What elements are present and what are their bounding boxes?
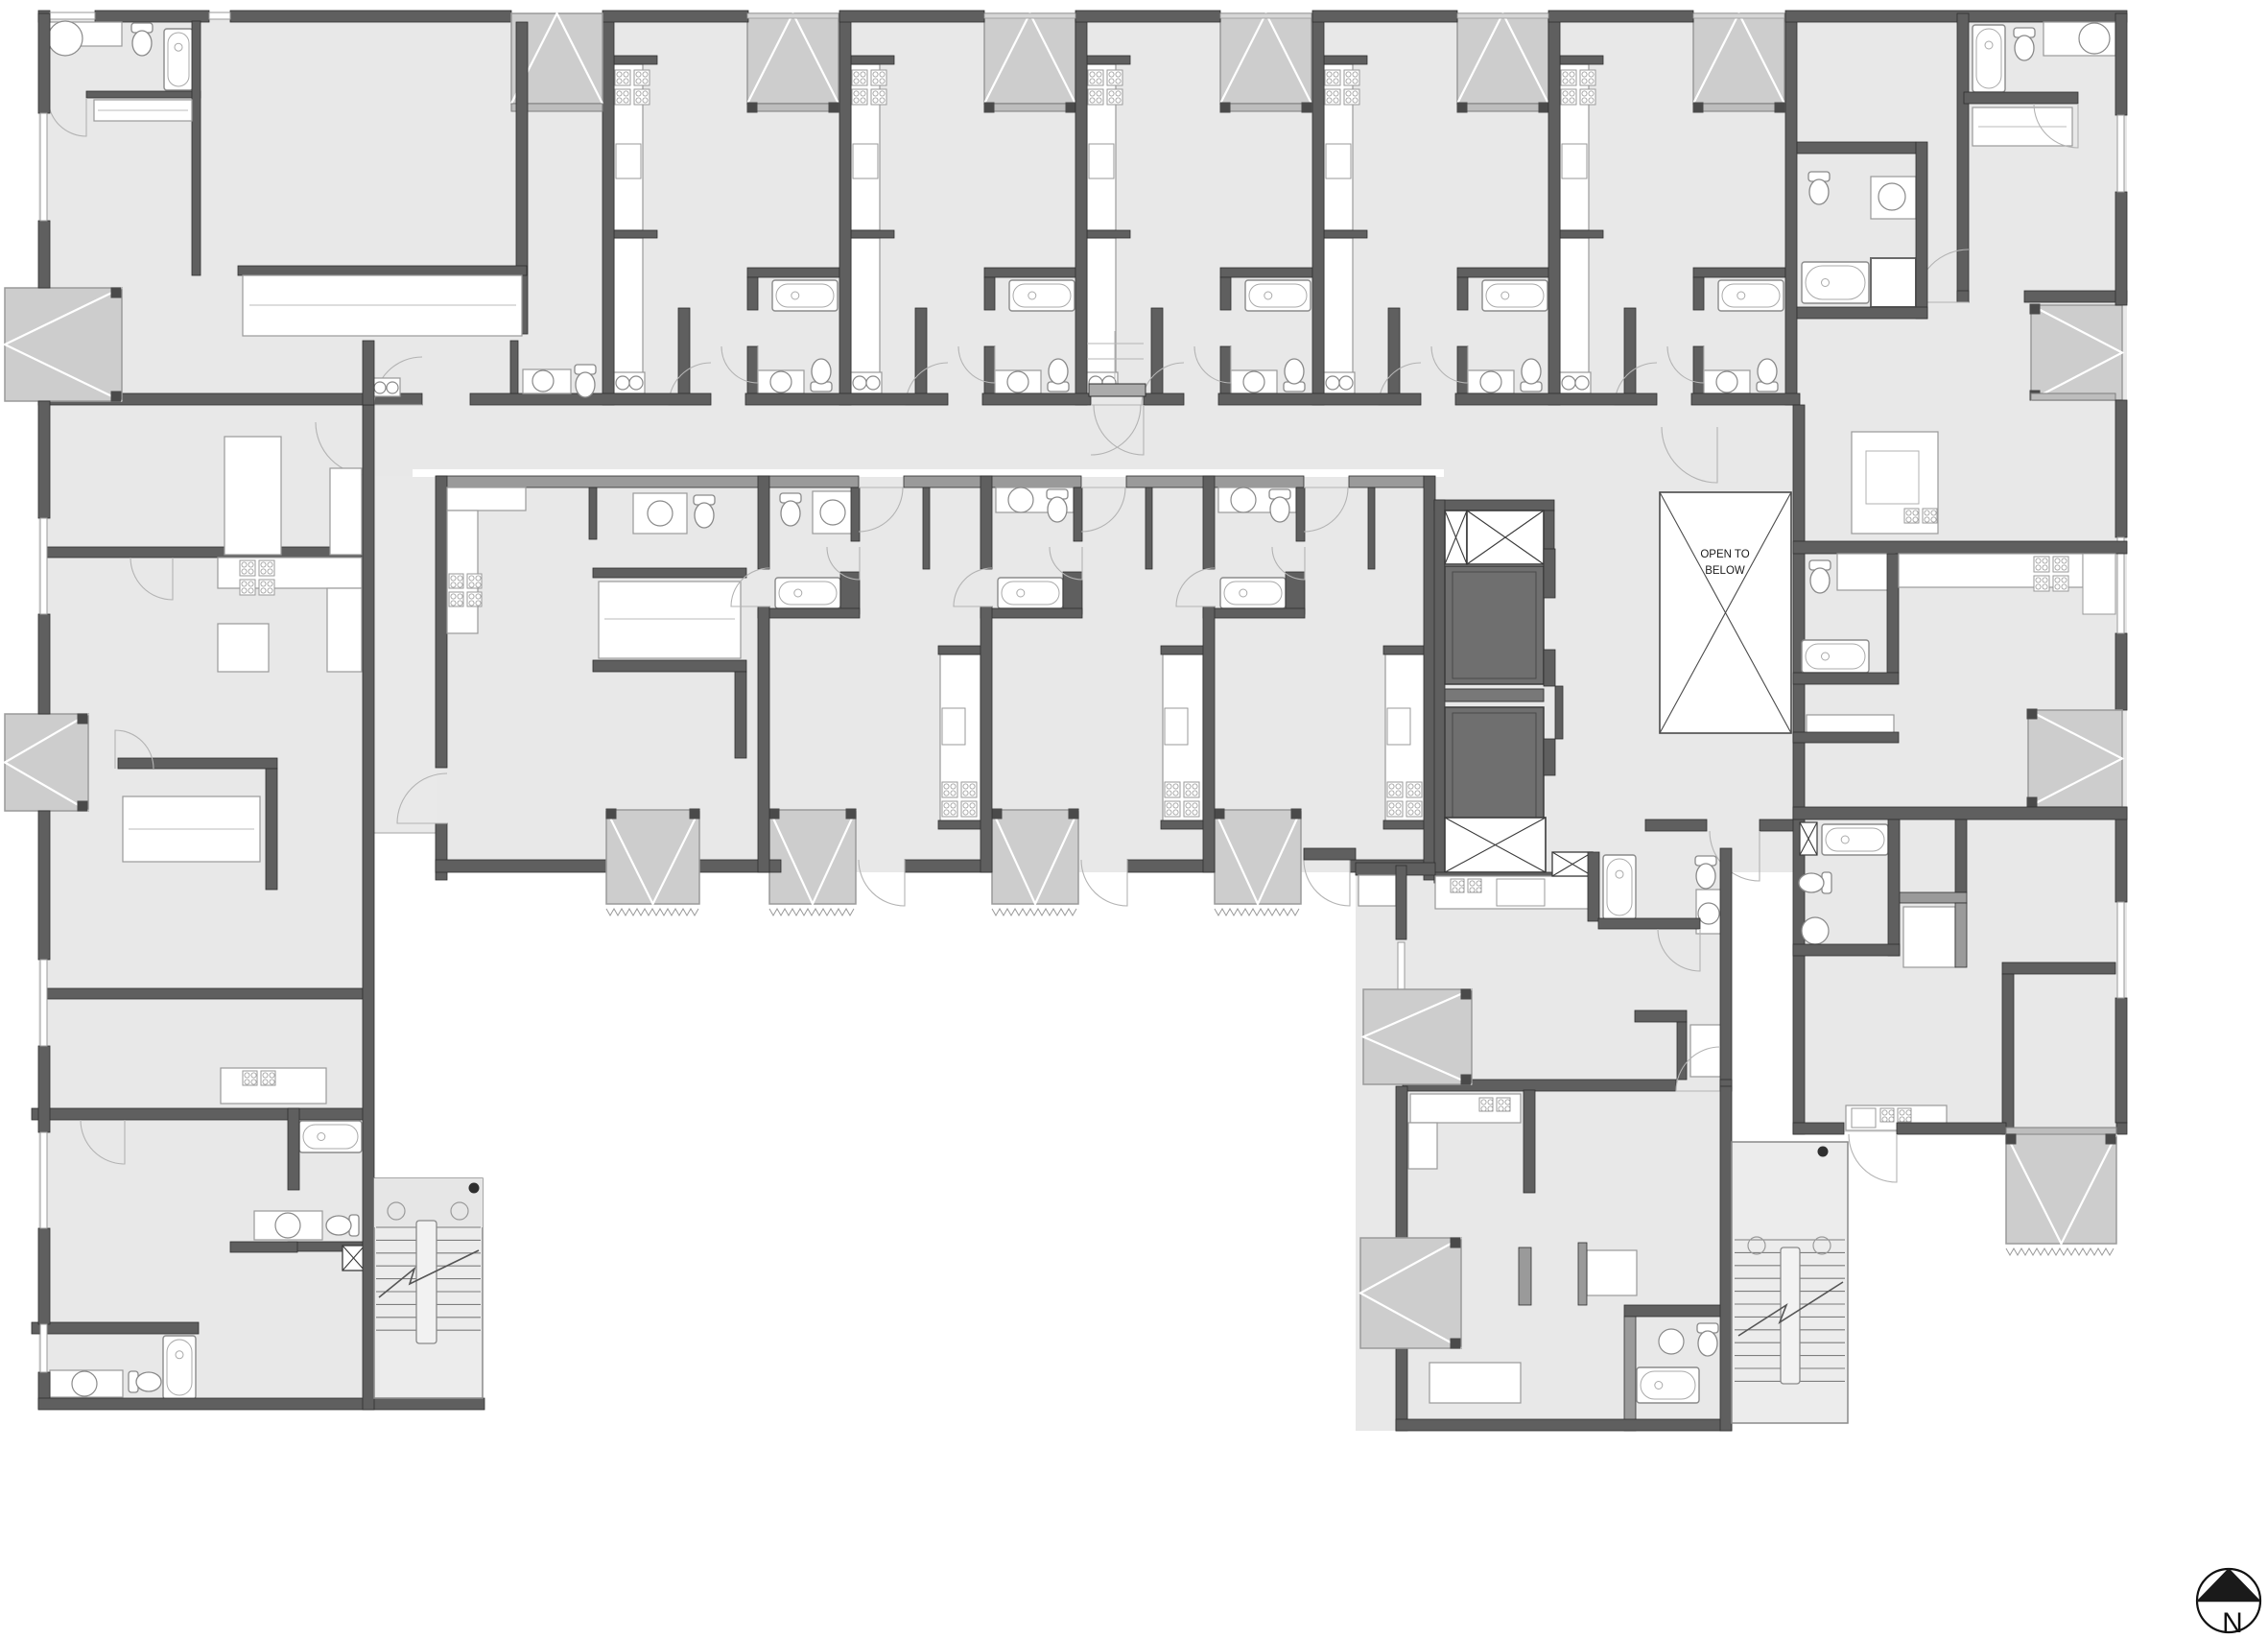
svg-text:N: N xyxy=(2222,1607,2243,1639)
svg-text:OPEN TO: OPEN TO xyxy=(1700,549,1749,560)
svg-text:BELOW: BELOW xyxy=(1705,565,1745,577)
